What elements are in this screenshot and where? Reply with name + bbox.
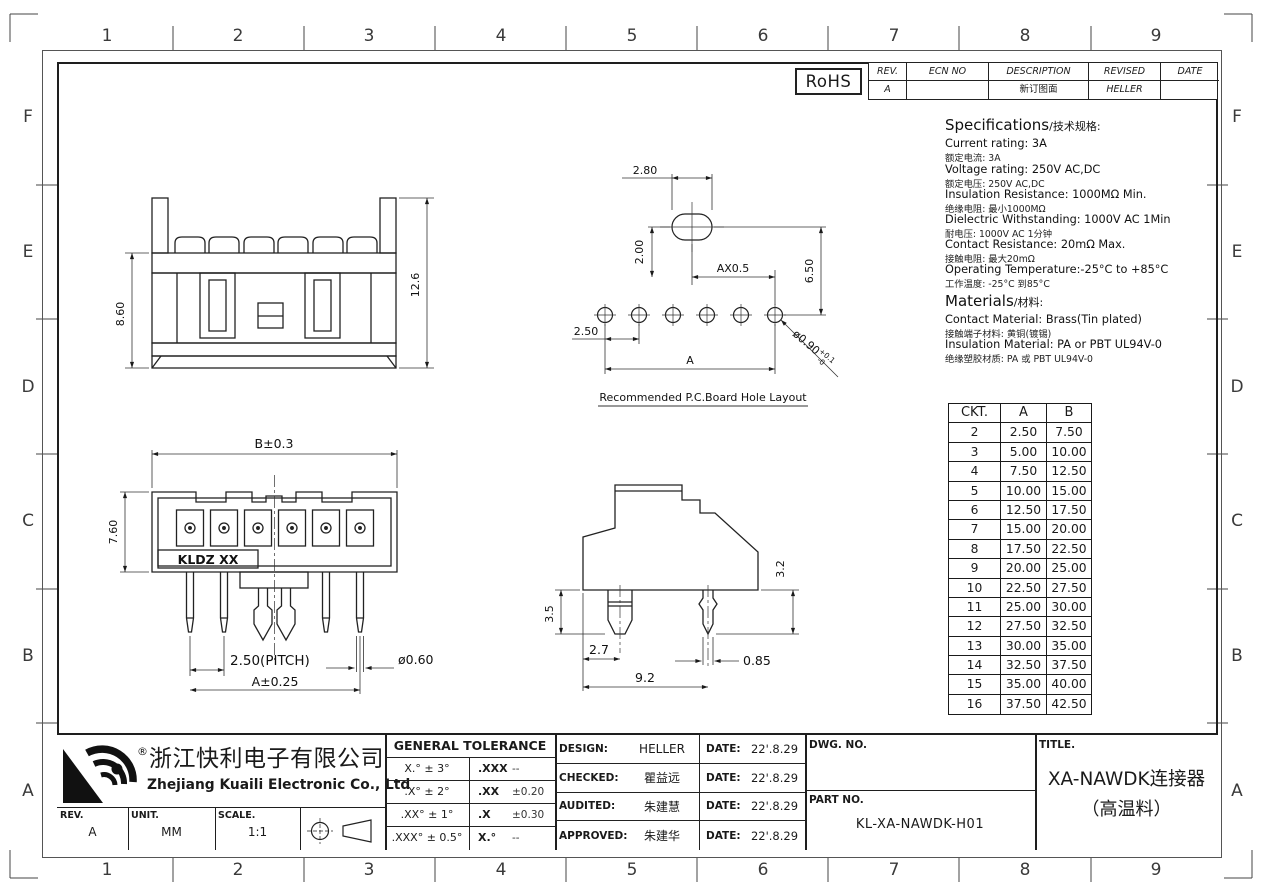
ckt-cell: 37.50 (1047, 656, 1091, 675)
ckt-cell: 15.00 (1047, 482, 1091, 501)
border-col-label: 1 (102, 860, 113, 880)
border-row-label: C (1231, 511, 1243, 531)
material-item: Insulation Material: PA or PBT UL94V-0 (945, 338, 1162, 351)
company-name-zh: 浙江快利电子有限公司 (149, 739, 383, 773)
ckt-cell: 6 (949, 501, 1001, 520)
tolerance-row: .XX° ± 1° .X ±0.30 (385, 804, 555, 827)
view-front-top: 8.60 12.6 (105, 183, 450, 383)
dwg-no-label: DWG. NO. (809, 739, 867, 751)
rev-cell (1161, 81, 1219, 99)
border-col-label: 7 (889, 860, 900, 880)
ckt-cell: 12 (949, 617, 1001, 636)
ckt-cell: 32.50 (1001, 656, 1047, 675)
ckt-cell: 32.50 (1047, 617, 1091, 636)
spec-item: Dielectric Withstanding: 1000V AC 1Min (945, 213, 1171, 226)
border-row-label: B (1231, 646, 1243, 666)
signoff-row: APPROVED:朱建华 DATE:22'.8.29 (555, 821, 805, 850)
dim-pitch: 2.50 (574, 325, 599, 338)
ckt-cell: 9 (949, 559, 1001, 578)
view-pcb-layout: 2.80 2.00 AX0.5 6.50 2.50 A ø0.90+0.1-0 … (540, 150, 885, 412)
border-row-label: B (22, 646, 34, 666)
ckt-cell: 30.00 (1047, 598, 1091, 617)
tolerance-title: GENERAL TOLERANCE (385, 735, 555, 758)
projection-symbol (307, 815, 377, 847)
spec-item-zh: 额定电流: 3A (945, 150, 1001, 164)
ckt-cell: 42.50 (1047, 695, 1091, 714)
border-col-label: 8 (1020, 26, 1031, 46)
pcb-dims (572, 174, 838, 406)
material-item-zh: 绝缘塑胶材质: PA 或 PBT UL94V-0 (945, 351, 1093, 365)
border-col-label: 9 (1151, 26, 1162, 46)
ckt-header: A (1001, 404, 1047, 423)
signoff-row: DESIGN:HELLER DATE:22'.8.29 (555, 735, 805, 764)
dim-drop: 6.50 (803, 259, 816, 284)
company-logo: ® (61, 741, 147, 805)
dim-peg-length: 3.5 (543, 605, 556, 623)
border-row-label: D (1230, 377, 1243, 397)
ckt-cell: 3 (949, 443, 1001, 462)
ckt-table: CKT. A B 22.507.50 35.0010.00 47.5012.50… (948, 403, 1092, 715)
rev-cell (907, 81, 989, 99)
ckt-cell: 14 (949, 656, 1001, 675)
border-col-label: 3 (364, 860, 375, 880)
side-dims (555, 590, 799, 691)
rev-label: REV. (60, 810, 84, 821)
ckt-cell: 20.00 (1001, 559, 1047, 578)
dim-span: A (686, 354, 694, 367)
ckt-cell: 10.00 (1047, 443, 1091, 462)
view-side: 3.5 3.2 2.7 9.2 0.85 (525, 425, 845, 710)
scale-label: SCALE. (218, 810, 255, 821)
ckt-cell: 15 (949, 675, 1001, 694)
signoff-row: AUDITED:朱建慧 DATE:22'.8.29 (555, 793, 805, 822)
specifications-title: Specifications/技术规格: (945, 116, 1101, 134)
ckt-cell: 30.00 (1001, 637, 1047, 656)
border-col-label: 5 (627, 860, 638, 880)
ckt-cell: 2.50 (1001, 423, 1047, 442)
material-item: Contact Material: Brass(Tin plated) (945, 313, 1142, 326)
ckt-cell: 8 (949, 540, 1001, 559)
unit-label: UNIT. (131, 810, 159, 821)
border-col-label: 6 (758, 860, 769, 880)
ckt-cell: 16 (949, 695, 1001, 714)
border-row-label: A (22, 781, 34, 801)
dim-ax: AX0.5 (717, 262, 750, 275)
rev-value: A (57, 823, 128, 841)
ckt-cell: 17.50 (1001, 540, 1047, 559)
spec-item: Operating Temperature:-25°C to +85°C (945, 263, 1168, 276)
product-title-line2: （高温料） (1035, 795, 1218, 821)
signoff-table: DESIGN:HELLER DATE:22'.8.29 CHECKED:瞿益远 … (555, 735, 805, 850)
svg-text:ø0.90+0.1-0: ø0.90+0.1-0 (788, 327, 837, 372)
ckt-cell: 37.50 (1001, 695, 1047, 714)
dim-pitch-250: 2.50(PITCH) (230, 653, 310, 669)
border-row-label: E (23, 242, 34, 262)
border-col-label: 8 (1020, 860, 1031, 880)
ckt-cell: 15.00 (1001, 520, 1047, 539)
ckt-cell: 17.50 (1047, 501, 1091, 520)
rev-header: REV. (869, 63, 907, 81)
company-name-en: Zhejiang Kuaili Electronic Co., Ltd (147, 777, 383, 793)
dim-body-height: 8.60 (114, 302, 127, 327)
side-centerlines (620, 585, 708, 667)
drawing-sheet: 1 2 3 4 5 6 7 8 9 1 2 3 4 5 6 7 8 9 F E … (0, 0, 1262, 892)
ckt-cell: 25.00 (1001, 598, 1047, 617)
ckt-cell: 7.50 (1001, 462, 1047, 481)
rev-header: REVISED (1089, 63, 1161, 81)
border-row-label: D (21, 377, 34, 397)
ckt-cell: 13 (949, 637, 1001, 656)
rev-header: DESCRIPTION (989, 63, 1089, 81)
ckt-cell: 35.00 (1047, 637, 1091, 656)
dim-height-760: 7.60 (107, 520, 120, 545)
spec-item: Current rating: 3A (945, 137, 1047, 150)
border-row-label: C (22, 511, 34, 531)
ckt-cell: 5 (949, 482, 1001, 501)
part-marking: KLDZ XX (178, 552, 239, 567)
rev-cell: 新订图面 (989, 81, 1089, 99)
divider (57, 807, 385, 808)
border-col-label: 7 (889, 26, 900, 46)
pcb-outline (598, 214, 783, 323)
ckt-cell: 35.00 (1001, 675, 1047, 694)
spec-item: Contact Resistance: 20mΩ Max. (945, 238, 1125, 251)
spec-item: Voltage rating: 250V AC,DC (945, 163, 1100, 176)
divider (1035, 735, 1037, 850)
side-outline (583, 485, 758, 634)
border-col-label: 6 (758, 26, 769, 46)
ckt-cell: 10.00 (1001, 482, 1047, 501)
border-col-label: 2 (233, 26, 244, 46)
border-col-label: 5 (627, 26, 638, 46)
border-row-label: E (1232, 242, 1243, 262)
ckt-cell: 7 (949, 520, 1001, 539)
revision-table: REV. ECN NO DESCRIPTION REVISED DATE A 新… (868, 62, 1218, 100)
ckt-cell: 20.00 (1047, 520, 1091, 539)
dim-oval-height: 2.00 (633, 240, 646, 265)
ckt-cell: 2 (949, 423, 1001, 442)
dim-oval-width: 2.80 (633, 164, 658, 177)
tolerance-table: GENERAL TOLERANCE X.° ± 3° .XXX -- .X° ±… (385, 735, 555, 850)
part-no-value: KL-XA-NAWDK-H01 (805, 817, 1035, 832)
ckt-cell: 22.50 (1047, 540, 1091, 559)
divider (805, 790, 1035, 791)
border-col-label: 4 (496, 26, 507, 46)
front-top-outline (152, 198, 396, 368)
pcb-centerlines (594, 202, 786, 326)
border-col-label: 9 (1151, 860, 1162, 880)
ckt-header: CKT. (949, 404, 1001, 423)
dim-pin-width: 0.85 (743, 653, 771, 668)
view-front-bottom: B±0.3 7.60 2.50(PITCH) A±0.25 ø0.60 KLDZ… (100, 420, 450, 712)
dim-total-height: 12.6 (409, 273, 422, 298)
border-col-label: 4 (496, 860, 507, 880)
title-label: TITLE. (1039, 739, 1075, 751)
border-col-label: 1 (102, 26, 113, 46)
dim-hole-dia: ø0.90+0.1-0 (788, 327, 837, 372)
product-title-line1: XA-NAWDK连接器 (1035, 765, 1218, 791)
ckt-cell: 10 (949, 579, 1001, 598)
title-block: ® 浙江快利电子有限公司 Zhejiang Kuaili Electronic … (57, 733, 1218, 848)
border-row-label: A (1231, 781, 1243, 801)
tolerance-row: .XXX° ± 0.5° X.° -- (385, 827, 555, 850)
rev-header: DATE (1161, 63, 1219, 81)
border-col-label: 2 (233, 860, 244, 880)
signoff-row: CHECKED:瞿益远 DATE:22'.8.29 (555, 764, 805, 793)
dim-pin-dia: ø0.60 (398, 652, 434, 667)
ckt-header: B (1047, 404, 1091, 423)
ckt-cell: 40.00 (1047, 675, 1091, 694)
ckt-cell: 4 (949, 462, 1001, 481)
dim-width-b: B±0.3 (255, 436, 294, 451)
border-row-label: F (23, 107, 33, 127)
ckt-cell: 7.50 (1047, 423, 1091, 442)
ckt-cell: 27.50 (1047, 579, 1091, 598)
ckt-cell: 27.50 (1001, 617, 1047, 636)
spec-item-zh: 工作温度: -25°C 到85°C (945, 276, 1050, 290)
ckt-cell: 12.50 (1001, 501, 1047, 520)
ckt-cell: 11 (949, 598, 1001, 617)
rev-cell: HELLER (1089, 81, 1161, 99)
border-col-label: 3 (364, 26, 375, 46)
registered-mark: ® (137, 745, 147, 758)
spec-item: Insulation Resistance: 1000MΩ Min. (945, 188, 1146, 201)
rev-header: ECN NO (907, 63, 989, 81)
dim-span-a: A±0.25 (252, 674, 299, 689)
materials-title: Materials/材料: (945, 292, 1043, 310)
ckt-cell: 5.00 (1001, 443, 1047, 462)
scale-value: 1:1 (215, 823, 300, 841)
rev-cell: A (869, 81, 907, 99)
border-row-label: F (1232, 107, 1242, 127)
pcb-caption: Recommended P.C.Board Hole Layout (599, 391, 807, 404)
divider (300, 807, 301, 850)
ckt-cell: 22.50 (1001, 579, 1047, 598)
divider (805, 735, 807, 850)
ckt-cell: 12.50 (1047, 462, 1091, 481)
dim-depth: 9.2 (635, 670, 655, 685)
ckt-cell: 25.00 (1047, 559, 1091, 578)
tolerance-row: .X° ± 2° .XX ±0.20 (385, 781, 555, 804)
dim-peg-offset: 2.7 (589, 642, 609, 657)
unit-value: MM (128, 823, 215, 841)
tolerance-row: X.° ± 3° .XXX -- (385, 758, 555, 781)
rohs-badge: RoHS (795, 68, 862, 95)
dim-pin-length: 3.2 (774, 560, 787, 578)
part-no-label: PART NO. (809, 794, 864, 806)
